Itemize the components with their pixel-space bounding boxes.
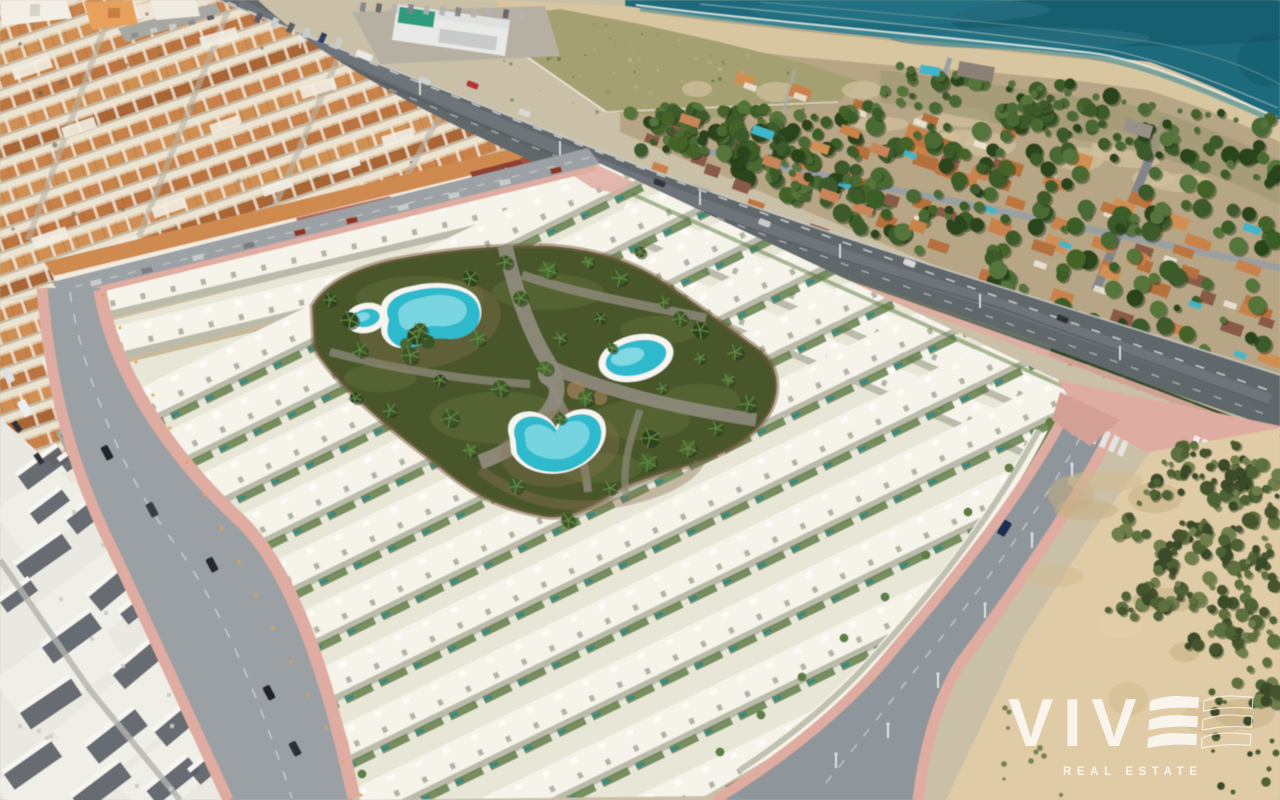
svg-text:REAL ESTATE: REAL ESTATE — [1063, 766, 1203, 778]
svg-text:VIV: VIV — [1008, 685, 1146, 761]
